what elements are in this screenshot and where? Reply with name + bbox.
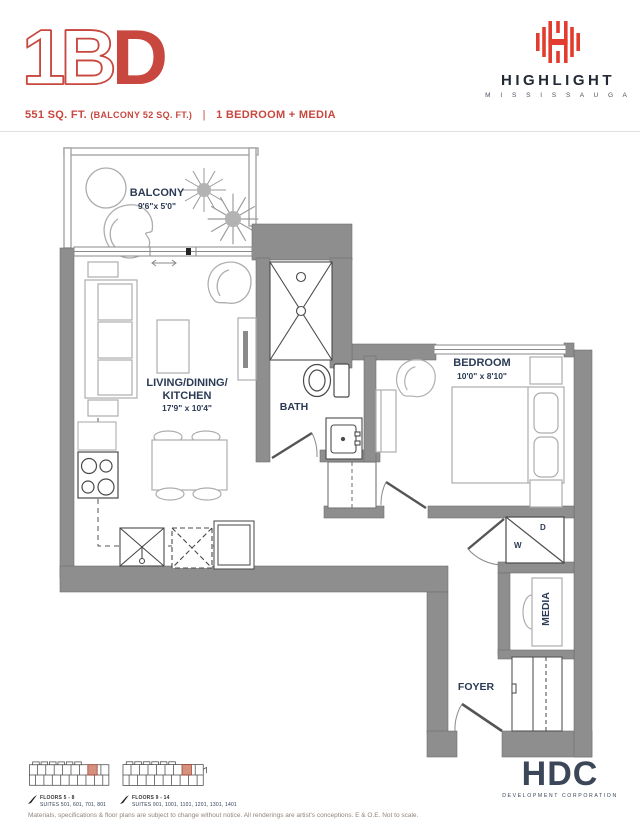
tv-console <box>238 318 256 380</box>
developer-name: HDC <box>500 757 620 791</box>
coffee-table <box>157 320 189 373</box>
wall-kitchen-bottom <box>60 566 448 592</box>
toilet <box>304 364 350 397</box>
wall-bedroom-bottom <box>428 506 574 518</box>
counter <box>78 422 116 450</box>
wall-bath-right <box>330 258 352 368</box>
bed <box>452 387 564 483</box>
wall-bath-cap <box>252 224 352 260</box>
door-stop <box>186 248 191 255</box>
media-label: MEDIA <box>540 585 556 633</box>
side-table-bottom <box>88 400 118 416</box>
side-table-top <box>88 262 118 277</box>
washer-dryer <box>506 517 564 563</box>
developer-logo: HDC DEVELOPMENT CORPORATION <box>500 757 620 799</box>
annotation-pen-icon <box>28 795 37 804</box>
annotation-pen-icon <box>120 795 129 804</box>
wall-right <box>574 350 592 757</box>
dining-set <box>152 431 227 500</box>
foyer-closet <box>512 657 562 731</box>
sliding-door-arrow-icon <box>152 260 176 266</box>
kitchen-sink <box>120 528 164 566</box>
washer-label: W <box>514 541 522 550</box>
dryer-label: D <box>540 523 546 532</box>
bedroom-label: BEDROOM 10'0" x 8'10" <box>430 357 534 381</box>
bath-door <box>272 433 317 458</box>
highlighted-unit <box>182 765 191 775</box>
highlighted-unit <box>88 765 97 775</box>
floorplan-sheet: 1BD 551 SQ. FT. (BALCONY 52 SQ. FT.) | 1… <box>0 0 640 825</box>
dining-table <box>152 440 227 490</box>
bedroom-door <box>381 482 426 508</box>
living-label: LIVING/DINING/ KITCHEN 17'9" x 10'4" <box>126 377 248 413</box>
wall-bath-left <box>256 258 270 462</box>
keyplan-floors-9-14 <box>120 758 210 792</box>
stove <box>78 452 118 498</box>
wall-left <box>60 248 74 578</box>
bath-label: BATH <box>264 401 324 413</box>
balcony-label: BALCONY 9'6"x 5'0" <box>103 187 211 211</box>
wall-foyer-left <box>427 592 448 733</box>
keyplan-floors-5-8 <box>28 758 114 792</box>
disclaimer-text: Materials, specifications & floor plans … <box>28 812 608 819</box>
dishwasher <box>172 528 212 568</box>
laundry-door <box>468 519 504 565</box>
shower <box>270 262 332 360</box>
bathroom-sink <box>326 418 362 459</box>
wall-wd-media <box>498 562 574 573</box>
wall-foyer-bottom-left <box>427 731 457 757</box>
developer-tagline: DEVELOPMENT CORPORATION <box>500 793 620 799</box>
keyplan-caption-2: FLOORS 9 - 14 SUITES 901, 1001, 1101, 12… <box>120 795 237 808</box>
keyplan-caption-1: FLOORS 5 - 8 SUITES 501, 601, 701, 801 <box>28 795 106 808</box>
dresser <box>376 390 396 452</box>
hall-closet <box>328 462 376 508</box>
wall-media-left <box>498 573 510 655</box>
refrigerator <box>214 521 254 569</box>
lounge-chair <box>208 262 251 303</box>
balcony-chairs <box>86 168 152 258</box>
foyer-label: FOYER <box>446 681 506 693</box>
tv <box>243 331 248 368</box>
entry-door <box>455 704 502 731</box>
